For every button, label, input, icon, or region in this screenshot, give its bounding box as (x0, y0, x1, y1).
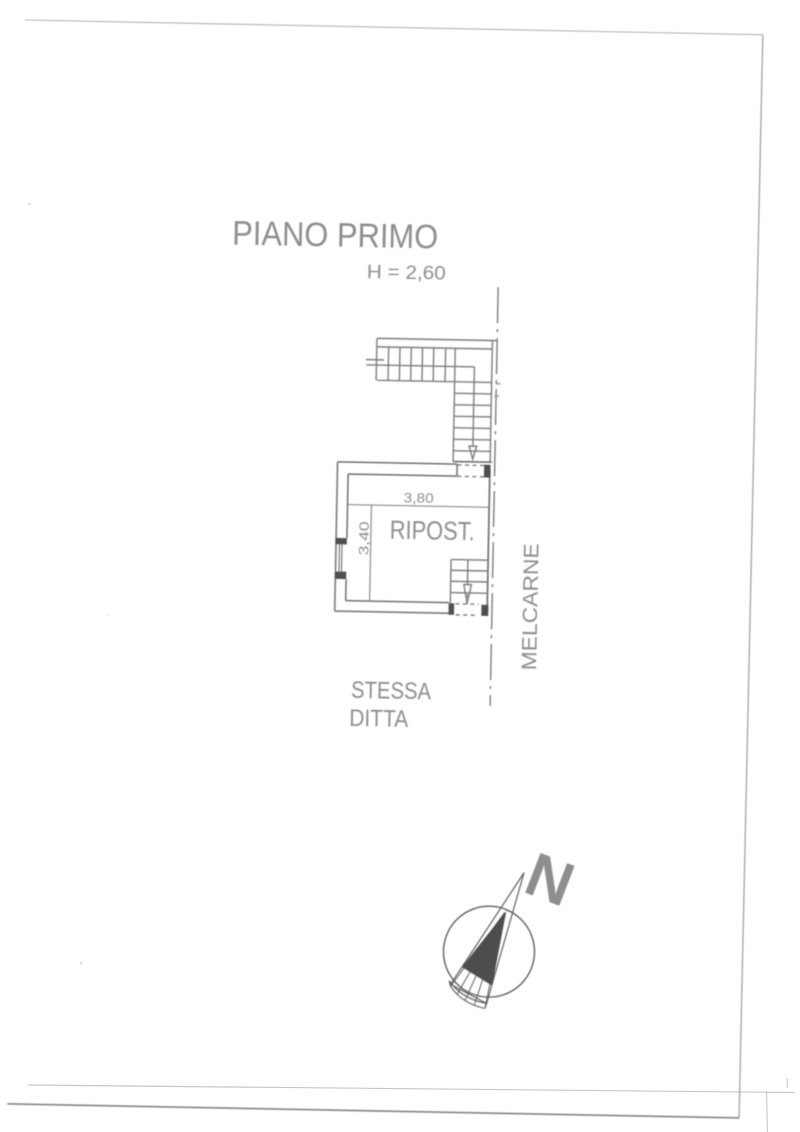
svg-text:H = 2,60: H = 2,60 (367, 262, 446, 285)
svg-text:DITTA: DITTA (349, 705, 409, 733)
svg-text:STESSA: STESSA (351, 677, 432, 706)
svg-text:3,80: 3,80 (404, 489, 435, 506)
svg-text:MELCARNE: MELCARNE (517, 543, 543, 670)
svg-text:3,40: 3,40 (355, 521, 372, 556)
svg-text:PIANO PRIMO: PIANO PRIMO (232, 215, 439, 257)
svg-text:RIPOST.: RIPOST. (390, 514, 476, 546)
svg-text:N: N (516, 840, 583, 920)
